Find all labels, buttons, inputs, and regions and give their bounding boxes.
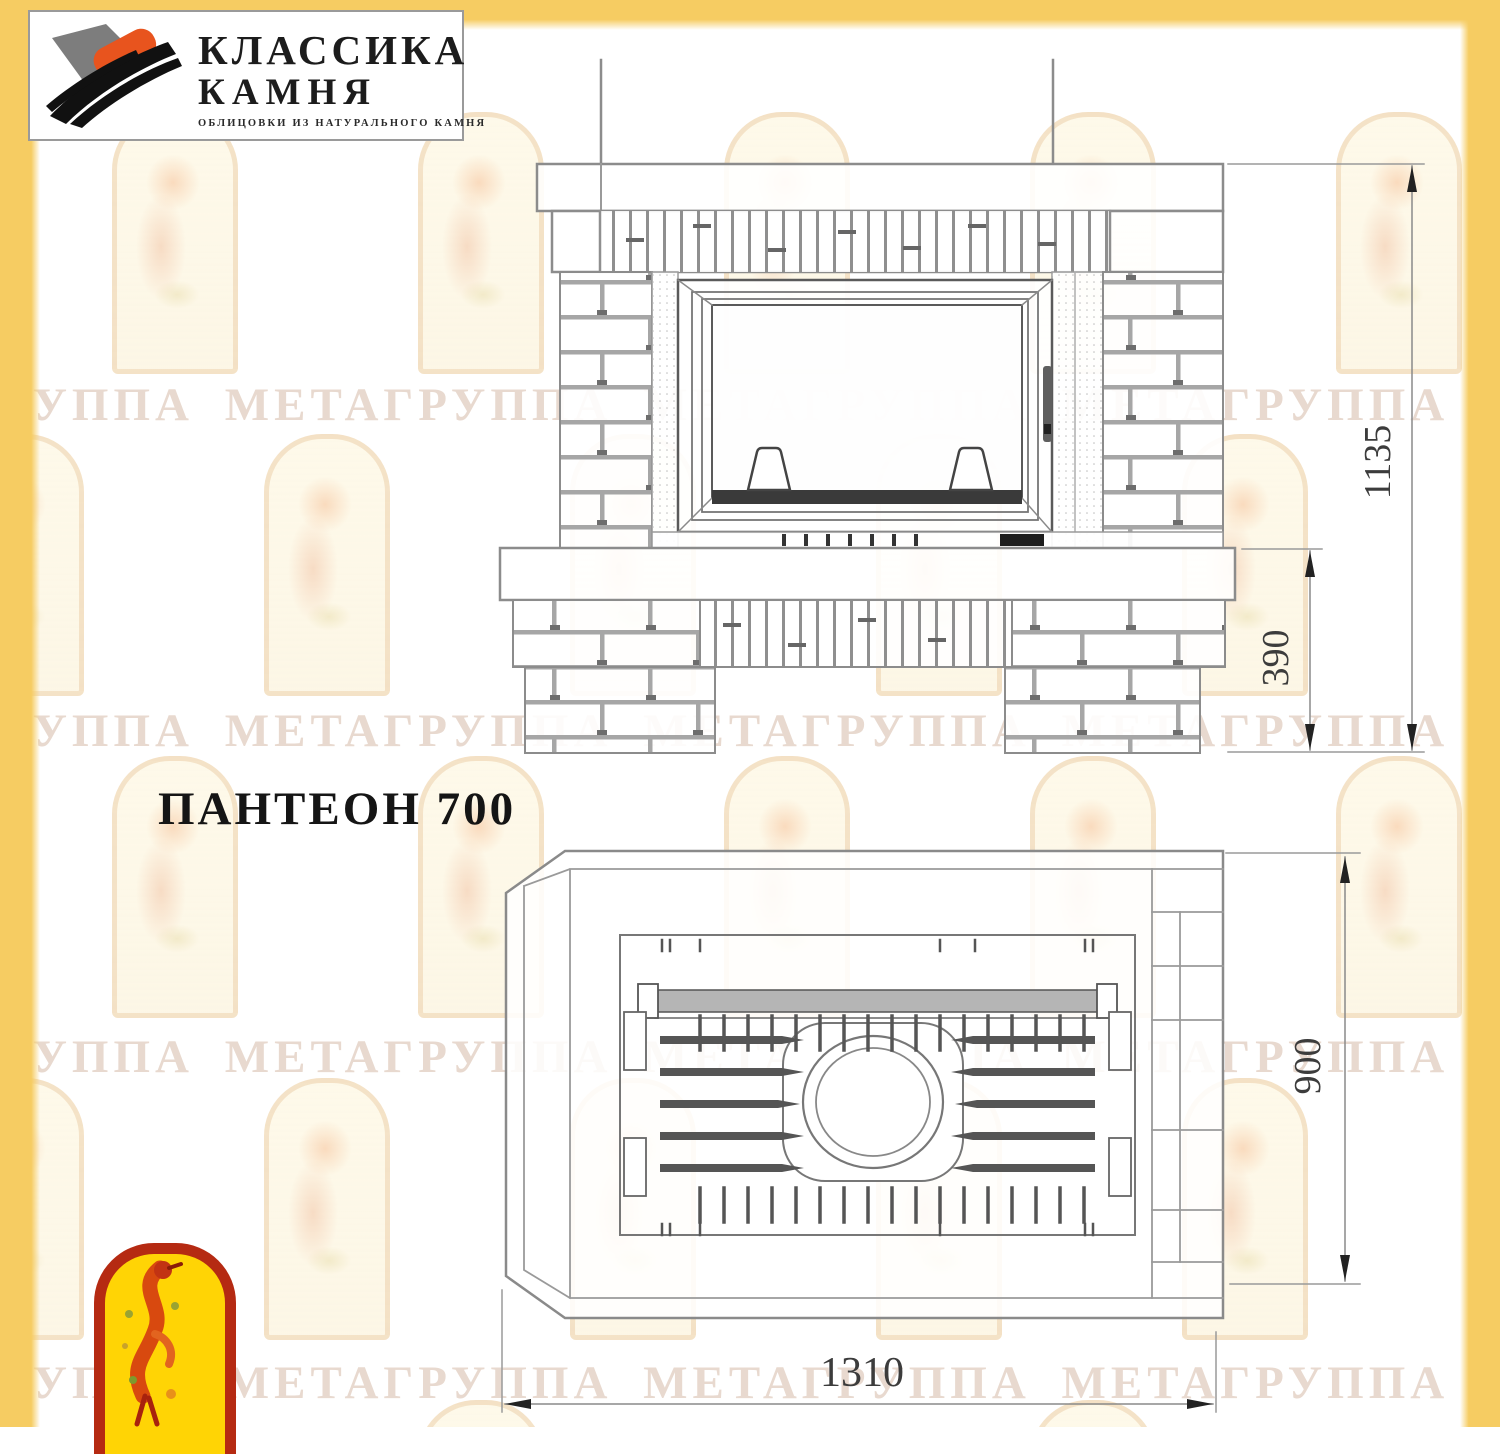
logo-subtitle: ОБЛИЦОВКИ ИЗ НАТУРАЛЬНОГО КАМНЯ [198,118,486,129]
dimension-width: 1310 [820,1350,904,1396]
firebird-icon [105,1254,203,1434]
plan-view-drawing: 900 1310 [502,851,1360,1412]
company-logo: КЛАССИКА КАМНЯ ОБЛИЦОВКИ ИЗ НАТУРАЛЬНОГО… [28,10,464,141]
bird-emblem [94,1243,236,1454]
front-view-drawing: 1135 390 [500,60,1424,753]
dimension-depth: 900 [1287,1038,1329,1095]
page: { "logo": { "line1": "КЛАССИКА", "line2"… [0,0,1500,1427]
dimension-total-height: 1135 [1357,425,1399,500]
dimension-base-height: 390 [1255,630,1297,687]
stone-logo-icon [44,20,194,130]
fireplace-technical-drawing: 1135 390 [0,0,1500,1427]
front-view-dimensions: 1135 390 [1228,164,1424,752]
logo-title-line2: КАМНЯ [198,74,377,111]
logo-title-line1: КЛАССИКА [198,30,468,71]
page-title: ПАНТЕОН 700 [158,782,516,836]
